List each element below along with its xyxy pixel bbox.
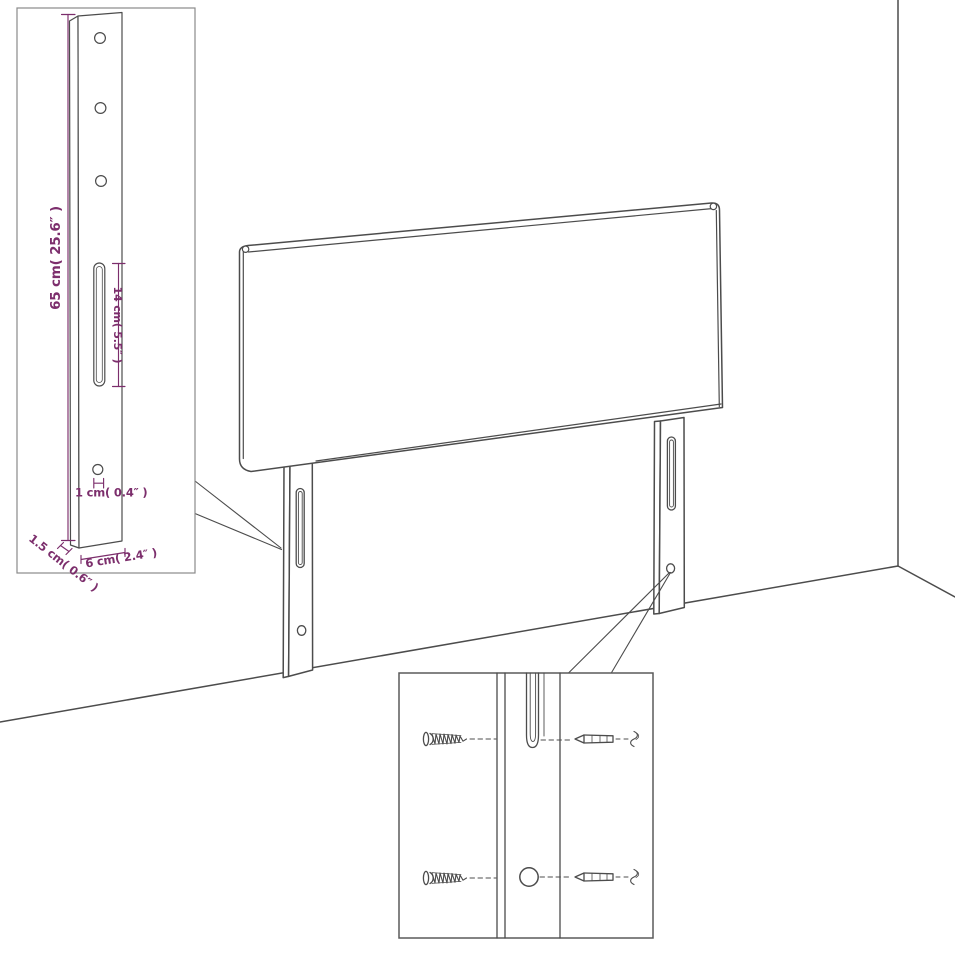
callout-line bbox=[195, 481, 281, 548]
bracket-drawing bbox=[70, 13, 123, 549]
right-floor-line bbox=[898, 566, 955, 597]
right-mounting-leg bbox=[654, 418, 685, 615]
panel-right-top-curl bbox=[710, 203, 716, 209]
leg-front-face bbox=[659, 418, 684, 614]
bracket-detail-inset: 65 cm( 25.6″ ) 14 cm( 5.5″ ) 1 cm( 0.4″ … bbox=[17, 8, 195, 594]
dimension-label-slot-length: 14 cm( 5.5″ ) bbox=[111, 287, 124, 364]
screw-detail-inset bbox=[399, 673, 653, 938]
callout-line bbox=[568, 573, 670, 674]
callout-line bbox=[195, 514, 282, 550]
panel-left-top-curl bbox=[242, 246, 248, 252]
panel-front-face bbox=[240, 203, 723, 472]
dimension-label-hole-diameter: 1 cm( 0.4″ ) bbox=[75, 486, 147, 500]
leg-front-face bbox=[289, 460, 313, 676]
callout-line bbox=[611, 573, 671, 674]
callout-lines-left-inset bbox=[195, 481, 282, 550]
left-mounting-leg bbox=[283, 460, 312, 678]
dimension-label-height: 65 cm( 25.6″ ) bbox=[48, 206, 64, 310]
bracket-front-face bbox=[78, 13, 122, 549]
headboard-dimension-diagram: 65 cm( 25.6″ ) 14 cm( 5.5″ ) 1 cm( 0.4″ … bbox=[0, 0, 955, 955]
headboard-panel bbox=[240, 203, 723, 472]
diagram-canvas: 65 cm( 25.6″ ) 14 cm( 5.5″ ) 1 cm( 0.4″ … bbox=[0, 0, 955, 955]
